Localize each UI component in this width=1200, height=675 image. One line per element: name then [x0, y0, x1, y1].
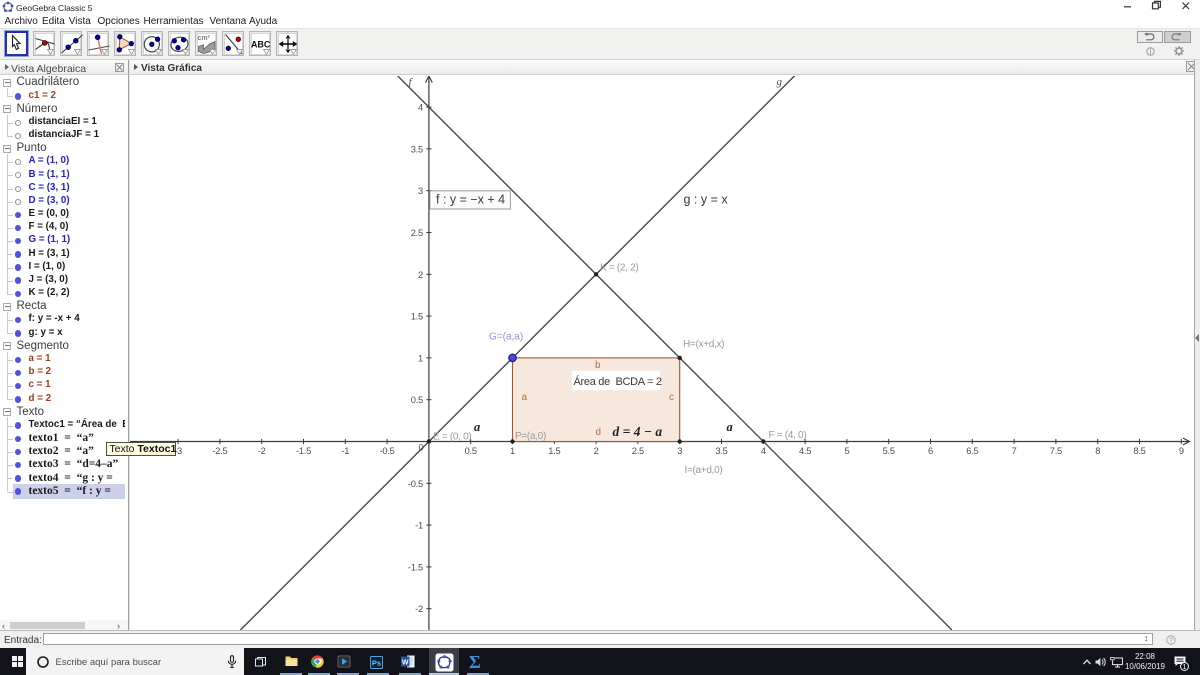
svg-text:?: ?: [1169, 637, 1173, 644]
svg-text:g: g: [777, 76, 783, 88]
svg-text:a: a: [727, 420, 733, 434]
svg-text:f : y = −x + 4: f : y = −x + 4: [436, 193, 505, 207]
svg-text:-2.5: -2.5: [212, 446, 227, 456]
svg-text:F = (4, 0): F = (4, 0): [769, 430, 807, 441]
svg-text:2.5: 2.5: [411, 228, 423, 238]
svg-text:cm²: cm²: [198, 35, 211, 42]
svg-text:5.5: 5.5: [883, 446, 895, 456]
svg-text:a: a: [474, 420, 480, 434]
svg-text:3.5: 3.5: [411, 144, 423, 154]
svg-text:2: 2: [418, 270, 423, 280]
svg-text:6: 6: [928, 446, 933, 456]
svg-text:1.5: 1.5: [411, 312, 423, 322]
svg-text:9: 9: [1179, 446, 1184, 456]
svg-text:7.5: 7.5: [1050, 446, 1062, 456]
svg-text:g : y = x: g : y = x: [684, 193, 729, 207]
svg-text:1: 1: [1182, 664, 1186, 671]
svg-text:G=(a,a): G=(a,a): [489, 332, 523, 343]
svg-text:W: W: [402, 659, 409, 666]
svg-text:7: 7: [1012, 446, 1017, 456]
svg-text:b: b: [595, 360, 601, 371]
svg-text:6.5: 6.5: [966, 446, 978, 456]
svg-text:5: 5: [844, 446, 849, 456]
svg-text:-0.5: -0.5: [408, 479, 423, 489]
svg-text:8: 8: [1095, 446, 1100, 456]
svg-text:-0.5: -0.5: [380, 446, 395, 456]
svg-text:3: 3: [418, 186, 423, 196]
svg-text:Ps: Ps: [372, 658, 381, 667]
svg-text:H=(x+d,x): H=(x+d,x): [683, 339, 724, 350]
svg-text:4: 4: [418, 103, 423, 113]
svg-text:-1: -1: [415, 521, 423, 531]
svg-text:K = (2, 2): K = (2, 2): [600, 263, 638, 274]
svg-text:2.5: 2.5: [632, 446, 644, 456]
svg-text:8.5: 8.5: [1133, 446, 1145, 456]
svg-text:d: d: [596, 427, 602, 438]
svg-text:2: 2: [594, 446, 599, 456]
svg-text:1.5: 1.5: [548, 446, 560, 456]
svg-text:-1: -1: [341, 446, 349, 456]
svg-text:a: a: [522, 392, 528, 403]
svg-text:ABC: ABC: [251, 40, 271, 50]
svg-text:c: c: [669, 392, 674, 403]
svg-text:1: 1: [510, 446, 515, 456]
svg-text:f: f: [409, 77, 414, 89]
svg-text:d = 4 − a: d = 4 − a: [613, 424, 663, 439]
svg-text:P=(a,0): P=(a,0): [515, 431, 546, 442]
svg-text:0.5: 0.5: [465, 446, 477, 456]
svg-text:1: 1: [418, 353, 423, 363]
svg-text:3: 3: [677, 446, 682, 456]
svg-text:-1.5: -1.5: [408, 562, 423, 572]
svg-text:E = (0, 0): E = (0, 0): [433, 432, 471, 443]
svg-text:Área de BCDA = 2: Área de BCDA = 2: [574, 375, 662, 388]
svg-text:4.5: 4.5: [799, 446, 811, 456]
svg-text:-2: -2: [258, 446, 266, 456]
svg-text:3.5: 3.5: [715, 446, 727, 456]
svg-text:-2: -2: [415, 604, 423, 614]
svg-text:4: 4: [761, 446, 766, 456]
svg-text:I=(a+d,0): I=(a+d,0): [685, 465, 723, 476]
svg-text:0.5: 0.5: [411, 395, 423, 405]
svg-text:-1.5: -1.5: [296, 446, 311, 456]
